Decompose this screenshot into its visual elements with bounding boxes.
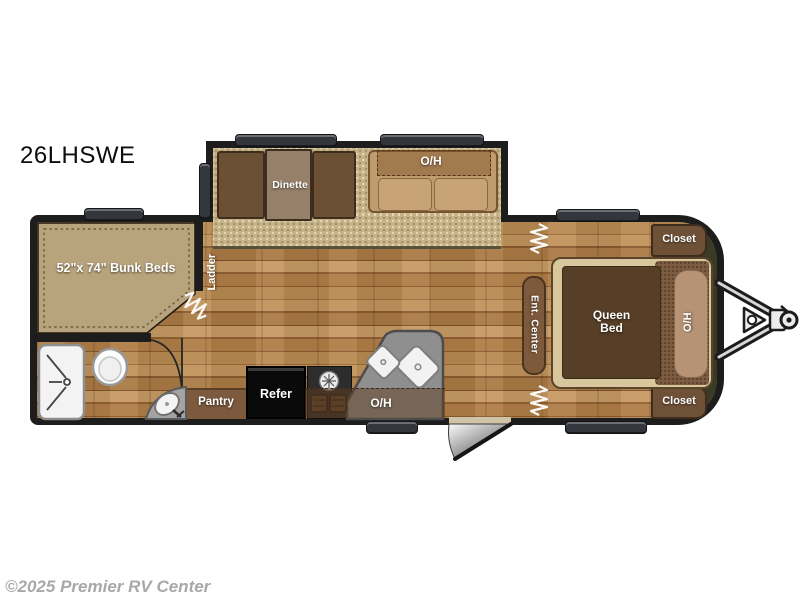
sofa-seat-right [434,178,488,211]
watermark: ©2025 Premier RV Center [5,577,210,597]
window-dinette-side-icon [199,163,211,219]
hitch-icon [719,283,797,357]
kitchen-overhead-label: O/H [357,397,405,410]
closet-bottom-label: Closet [651,395,707,407]
model-label: 26LHSWE [20,142,136,170]
carpet-strip [213,215,501,246]
carpet-trim [213,246,501,249]
refrigerator-label: Refer [246,387,306,401]
window-bunk-top-icon [84,208,144,221]
window-dinette-top-icon [235,134,337,147]
closet-top-label: Closet [651,233,707,245]
window-bedroom-bottom-icon [565,421,647,434]
pantry-label: Pantry [185,396,247,409]
ladder-label: Ladder [206,242,218,302]
ent-center-label: Ent. Center [528,280,539,370]
queen-bed-label: Queen Bed [584,309,639,336]
floorplan-canvas: 26LHSWE ©2025 Premier RV Center [0,0,800,600]
wall-bunk-bottom [30,333,151,342]
bunk-bed-label: 52"x 74" Bunk Beds [44,261,188,275]
bed-overhead-label: O/H [682,293,694,351]
dinette-label: Dinette [259,180,321,192]
dinette-bench-left [217,151,265,219]
window-sofa-top-icon [380,134,484,147]
sofa-overhead-label: O/H [405,155,457,168]
sofa-seat-left [378,178,432,211]
entry-threshold [449,417,511,426]
window-bedroom-top-icon [556,209,640,222]
window-kitchen-bottom-icon [366,421,418,434]
wall-bunk-right [194,215,203,291]
entry-door-swing-icon [449,424,511,459]
